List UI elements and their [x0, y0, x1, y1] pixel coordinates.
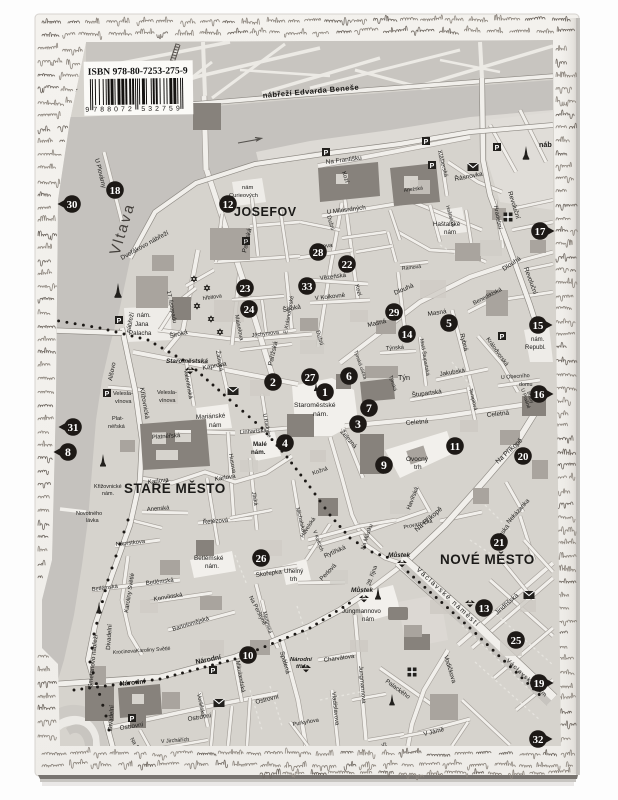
- svg-text:30: 30: [67, 199, 78, 211]
- svg-text:vínova: vínova: [115, 399, 132, 405]
- svg-text:nám.: nám.: [313, 411, 328, 418]
- svg-text:9: 9: [381, 458, 387, 472]
- svg-text:32: 32: [533, 734, 544, 746]
- svg-text:28: 28: [313, 247, 324, 259]
- svg-text:5: 5: [446, 316, 452, 330]
- svg-text:532759: 532759: [141, 105, 183, 113]
- svg-text:P: P: [500, 334, 505, 341]
- svg-text:4: 4: [282, 436, 288, 450]
- svg-text:nám.: nám.: [137, 312, 151, 319]
- svg-text:7: 7: [366, 401, 372, 415]
- svg-text:Týn: Týn: [398, 373, 410, 382]
- svg-text:Staroměstská: Staroměstská: [166, 358, 208, 365]
- svg-text:nám: nám: [362, 616, 374, 623]
- svg-text:12: 12: [223, 199, 234, 211]
- svg-text:Křižovnické: Křižovnické: [94, 484, 122, 490]
- svg-text:JOSEFOV: JOSEFOV: [234, 205, 297, 219]
- svg-text:trh: trh: [414, 464, 422, 471]
- svg-text:nám.: nám.: [531, 337, 545, 343]
- svg-text:Palacha: Palacha: [129, 330, 152, 337]
- svg-text:Národní: Národní: [290, 657, 313, 663]
- svg-text:Velesla-: Velesla-: [157, 390, 177, 396]
- svg-text:13: 13: [479, 603, 490, 615]
- svg-text:18: 18: [110, 185, 121, 197]
- svg-text:10: 10: [243, 650, 254, 662]
- svg-text:P: P: [495, 145, 500, 152]
- svg-text:lávka: lávka: [86, 518, 99, 524]
- svg-text:Malé: Malé: [253, 441, 267, 448]
- svg-text:nám: nám: [209, 422, 221, 429]
- svg-text:náb: náb: [539, 140, 552, 149]
- svg-text:6: 6: [346, 369, 352, 383]
- svg-text:trh: trh: [290, 576, 298, 583]
- svg-text:vínova: vínova: [159, 398, 176, 404]
- svg-text:8: 8: [65, 445, 71, 459]
- svg-text:néřská: néřská: [108, 424, 126, 430]
- svg-text:23: 23: [240, 283, 251, 295]
- svg-text:21: 21: [494, 537, 505, 549]
- svg-text:25: 25: [511, 635, 522, 647]
- svg-text:Staroměstské: Staroměstské: [294, 402, 336, 409]
- svg-text:ISBN 978-80-7253-275-9: ISBN 978-80-7253-275-9: [88, 65, 188, 77]
- svg-text:788072: 788072: [93, 106, 135, 114]
- svg-text:Betlémské: Betlémské: [194, 555, 224, 562]
- svg-text:domu: domu: [519, 382, 533, 388]
- svg-text:1: 1: [322, 385, 328, 399]
- svg-text:nám: nám: [242, 185, 253, 191]
- svg-text:Plat-: Plat-: [112, 416, 124, 422]
- svg-text:20: 20: [518, 451, 529, 463]
- svg-text:Uhelný: Uhelný: [284, 568, 304, 575]
- svg-text:Republ.: Republ.: [525, 345, 546, 351]
- svg-text:Haštalské: Haštalské: [433, 221, 461, 228]
- svg-text:Novotného: Novotného: [76, 511, 102, 517]
- svg-text:P: P: [430, 163, 435, 170]
- svg-text:11: 11: [450, 441, 460, 453]
- svg-text:22: 22: [342, 259, 353, 271]
- svg-text:Velesla-: Velesla-: [113, 391, 133, 397]
- svg-text:3: 3: [355, 417, 361, 431]
- svg-text:14: 14: [402, 329, 413, 341]
- svg-text:Můstek: Můstek: [388, 551, 410, 559]
- svg-text:třída: třída: [296, 664, 309, 670]
- svg-text:nám.: nám.: [251, 449, 266, 456]
- svg-text:17: 17: [535, 226, 546, 238]
- svg-text:27: 27: [305, 372, 316, 384]
- svg-text:33: 33: [302, 281, 313, 293]
- svg-text:STARÉ MĚSTO: STARÉ MĚSTO: [124, 481, 226, 496]
- svg-text:9: 9: [85, 107, 89, 114]
- svg-text:2: 2: [270, 375, 276, 389]
- svg-text:Jungmannovo: Jungmannovo: [342, 608, 381, 615]
- svg-text:nám.: nám.: [102, 491, 114, 497]
- svg-text:15: 15: [533, 320, 544, 332]
- svg-text:P: P: [105, 391, 110, 398]
- svg-text:16: 16: [534, 389, 545, 401]
- svg-text:NOVÉ MĚSTO: NOVÉ MĚSTO: [440, 552, 535, 567]
- svg-text:26: 26: [256, 553, 267, 565]
- svg-text:nám: nám: [444, 229, 456, 236]
- svg-text:Můstek: Můstek: [351, 586, 373, 594]
- svg-text:31: 31: [68, 422, 79, 434]
- svg-text:nám.: nám.: [205, 563, 219, 570]
- svg-text:P: P: [324, 150, 329, 157]
- svg-text:P: P: [424, 139, 429, 146]
- svg-text:24: 24: [244, 304, 255, 316]
- svg-text:29: 29: [389, 307, 400, 319]
- svg-text:Ovocný: Ovocný: [406, 456, 429, 463]
- svg-text:19: 19: [534, 678, 545, 690]
- svg-text:P: P: [211, 668, 216, 675]
- svg-text:Jana: Jana: [135, 321, 149, 328]
- svg-text:P: P: [117, 318, 122, 325]
